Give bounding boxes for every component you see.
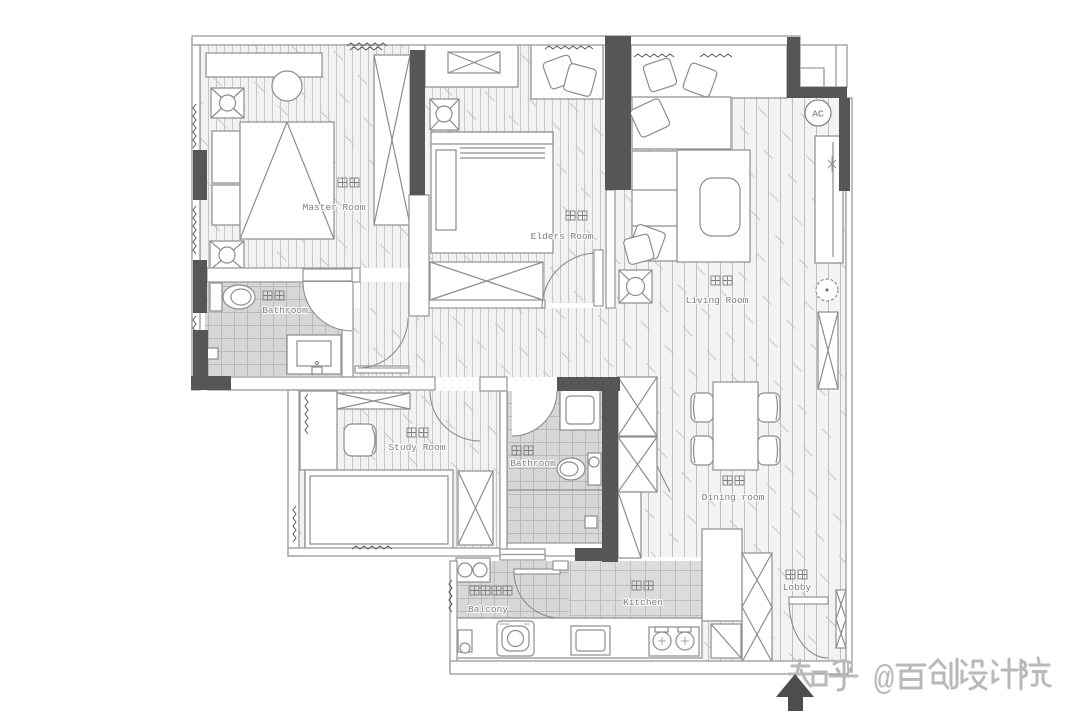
svg-text:Balcony: Balcony bbox=[468, 604, 508, 615]
svg-text:Lobby: Lobby bbox=[783, 582, 812, 593]
svg-text:Bathroom: Bathroom bbox=[510, 458, 556, 469]
svg-text:Master Room: Master Room bbox=[303, 202, 366, 213]
svg-text:Bathroom: Bathroom bbox=[262, 305, 308, 316]
svg-text:Elders Room: Elders Room bbox=[531, 231, 594, 242]
svg-text:Living Room: Living Room bbox=[686, 295, 749, 306]
svg-text:@: @ bbox=[874, 662, 894, 700]
svg-text:Study Room: Study Room bbox=[388, 442, 445, 453]
svg-text:AC: AC bbox=[812, 109, 824, 120]
svg-text:Kitchen: Kitchen bbox=[623, 597, 663, 608]
svg-text:Dining room: Dining room bbox=[702, 492, 765, 503]
